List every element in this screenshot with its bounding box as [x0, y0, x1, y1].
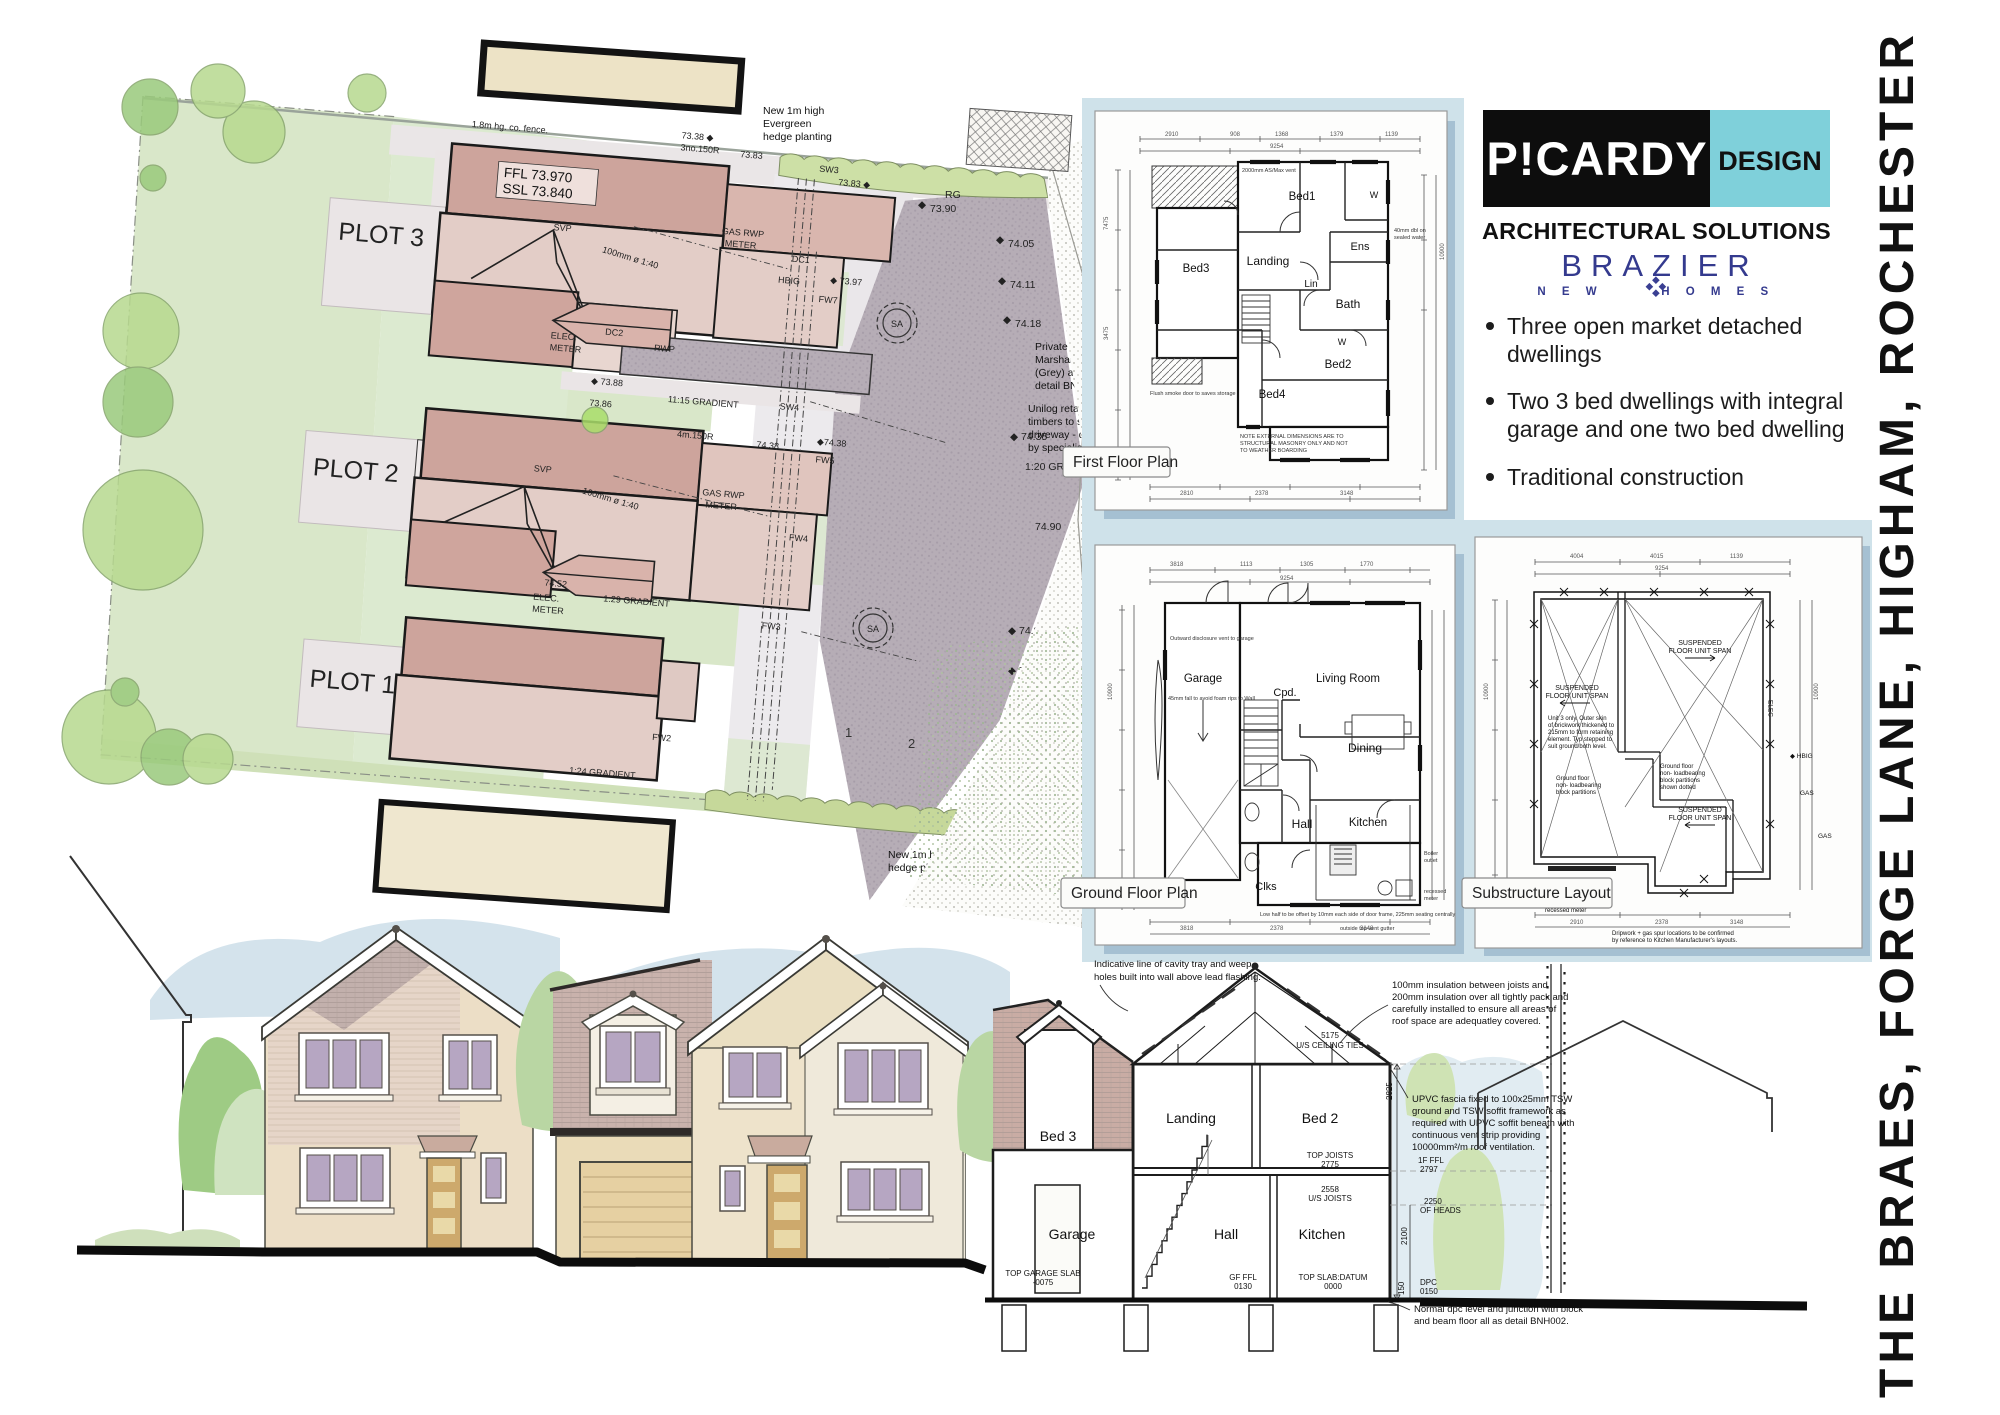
svg-text:2775: 2775 — [1321, 1160, 1339, 1169]
svg-text:FW5: FW5 — [815, 454, 835, 466]
svg-text:1379: 1379 — [1330, 132, 1344, 138]
svg-text:9254: 9254 — [1280, 576, 1294, 582]
svg-text:W: W — [1370, 190, 1379, 200]
svg-text:100mm insulation between joist: 100mm insulation between joists and — [1392, 980, 1548, 991]
svg-text:carefully installed to ensure: carefully installed to ensure all areas … — [1392, 1004, 1557, 1015]
svg-text:non- loadbearing: non- loadbearing — [1556, 783, 1601, 789]
svg-text:10900: 10900 — [1484, 683, 1490, 700]
svg-text:Evergreen: Evergreen — [763, 118, 812, 130]
svg-text:Garage: Garage — [1184, 673, 1222, 685]
svg-text:SA: SA — [867, 624, 879, 634]
svg-text:Ground floor: Ground floor — [1556, 776, 1589, 782]
svg-text:◆: ◆ — [998, 275, 1007, 287]
svg-text:74.38: 74.38 — [756, 439, 779, 451]
svg-text:W: W — [1338, 337, 1347, 347]
svg-text:FW4: FW4 — [789, 532, 809, 544]
svg-text:2250: 2250 — [1424, 1197, 1442, 1206]
svg-text:Unit 3 only. Outer skin: Unit 3 only. Outer skin — [1548, 716, 1607, 722]
svg-text:4004: 4004 — [1570, 554, 1584, 560]
svg-text:Cpd.: Cpd. — [1273, 687, 1296, 699]
svg-text:GF FFL: GF FFL — [1229, 1273, 1257, 1282]
svg-text:Bath: Bath — [1336, 297, 1361, 311]
svg-text:2797: 2797 — [1420, 1165, 1438, 1174]
svg-text:200mm insulation over all tigh: 200mm insulation over all tightly pack a… — [1392, 992, 1568, 1003]
svg-text:Ground Floor Plan: Ground Floor Plan — [1071, 885, 1198, 902]
svg-text:Bed 3: Bed 3 — [1040, 1128, 1077, 1144]
svg-text:◆: ◆ — [996, 234, 1005, 246]
svg-text:TO WEATHER BOARDING: TO WEATHER BOARDING — [1240, 448, 1307, 454]
svg-text:dwellings: dwellings — [1507, 341, 1602, 367]
svg-text:74.52: 74.52 — [544, 578, 567, 590]
svg-text:10900: 10900 — [1440, 243, 1446, 260]
svg-text:Living Room: Living Room — [1316, 673, 1380, 685]
svg-text:◆: ◆ — [1003, 314, 1012, 326]
svg-text:STRUCTURAL MASONRY ONLY AND NO: STRUCTURAL MASONRY ONLY AND NOT — [1240, 441, 1349, 447]
svg-text:HBIG: HBIG — [778, 275, 801, 287]
svg-text:suit ground/both level.: suit ground/both level. — [1548, 744, 1607, 750]
svg-text:Dining: Dining — [1348, 741, 1382, 755]
svg-text:10900: 10900 — [1814, 683, 1820, 700]
svg-text:9254: 9254 — [1270, 144, 1284, 150]
svg-text:Two 3 bed dwellings with integ: Two 3 bed dwellings with integral — [1507, 388, 1843, 414]
svg-text:908: 908 — [1230, 132, 1241, 138]
svg-text:DPC: DPC — [1420, 1278, 1437, 1287]
svg-text:element. Typ stepped to: element. Typ stepped to — [1548, 737, 1613, 743]
svg-text:Garage: Garage — [1049, 1226, 1096, 1242]
svg-text:74.11: 74.11 — [1010, 279, 1036, 291]
svg-text:DC1: DC1 — [791, 254, 810, 265]
svg-text:Bed 2: Bed 2 — [1302, 1110, 1339, 1126]
svg-text:ARCHITECTURAL SOLUTIONS: ARCHITECTURAL SOLUTIONS — [1482, 218, 1831, 244]
svg-text:2910: 2910 — [1165, 132, 1179, 138]
svg-text:-0075: -0075 — [1033, 1278, 1054, 1287]
svg-text:RG: RG — [945, 189, 961, 201]
svg-text:GAS: GAS — [1800, 790, 1814, 797]
svg-text:Hall: Hall — [1214, 1226, 1238, 1242]
svg-text:1113: 1113 — [1240, 562, 1253, 568]
svg-text:garage and one two bed dwellin: garage and one two bed dwelling — [1507, 416, 1845, 442]
svg-text:SUSPENDED: SUSPENDED — [1555, 685, 1599, 692]
svg-text:4015: 4015 — [1650, 554, 1664, 560]
svg-text:recessed meter: recessed meter — [1545, 908, 1586, 914]
svg-text:10900: 10900 — [1108, 683, 1114, 700]
svg-text:2810: 2810 — [1180, 491, 1194, 497]
svg-text:215mm to form retaining: 215mm to form retaining — [1548, 730, 1613, 736]
svg-text:SUSPENDED: SUSPENDED — [1678, 807, 1722, 814]
svg-text:U/S JOISTS: U/S JOISTS — [1308, 1194, 1352, 1203]
svg-text:73.83: 73.83 — [740, 149, 763, 161]
svg-text:FW2: FW2 — [652, 732, 672, 744]
svg-text:0000: 0000 — [1324, 1282, 1342, 1291]
svg-text:1305: 1305 — [1300, 562, 1314, 568]
svg-text:2378: 2378 — [1255, 491, 1269, 497]
svg-text:3148: 3148 — [1730, 920, 1744, 926]
svg-text:◆ HBIG: ◆ HBIG — [1790, 753, 1813, 760]
svg-text:3818: 3818 — [1180, 926, 1194, 932]
svg-text:Landing: Landing — [1247, 254, 1290, 268]
svg-text:NOTE EXTERNAL DIMENSIONS ARE T: NOTE EXTERNAL DIMENSIONS ARE TO — [1240, 434, 1344, 440]
svg-text:3148: 3148 — [1340, 491, 1354, 497]
svg-text:DESIGN: DESIGN — [1718, 146, 1822, 176]
svg-text:FLOOR UNIT SPAN: FLOOR UNIT SPAN — [1669, 815, 1732, 822]
svg-text:block partitions: block partitions — [1660, 778, 1700, 784]
svg-text:150: 150 — [1397, 1281, 1406, 1295]
svg-text:New 1m high: New 1m high — [763, 105, 824, 117]
svg-text:hedge planting: hedge planting — [763, 131, 832, 143]
svg-text:Ground floor: Ground floor — [1660, 764, 1693, 770]
svg-text:Bed1: Bed1 — [1289, 191, 1316, 203]
svg-text:2: 2 — [908, 736, 915, 751]
svg-text:2378: 2378 — [1655, 920, 1669, 926]
svg-text:Boiler: Boiler — [1424, 851, 1438, 857]
svg-text:Ens: Ens — [1351, 241, 1370, 253]
svg-text:FLOOR UNIT SPAN: FLOOR UNIT SPAN — [1669, 648, 1732, 655]
svg-text:meter: meter — [1424, 896, 1438, 902]
svg-text:required with UPVC soffit bene: required with UPVC soffit beneath with — [1412, 1118, 1574, 1129]
svg-text:Bed4: Bed4 — [1259, 389, 1286, 401]
svg-text:1F FFL: 1F FFL — [1418, 1156, 1444, 1165]
svg-text:Hall: Hall — [1292, 817, 1313, 831]
svg-text:Indicative line of cavity tray: Indicative line of cavity tray and weep — [1094, 959, 1251, 970]
svg-text:shown dotted: shown dotted — [1660, 785, 1696, 791]
svg-text:P!CARDY: P!CARDY — [1486, 132, 1707, 185]
svg-text:1770: 1770 — [1360, 562, 1374, 568]
svg-text:ELEC.: ELEC. — [550, 330, 577, 342]
svg-text:2100: 2100 — [1400, 1227, 1409, 1245]
svg-text:block partitions: block partitions — [1556, 790, 1596, 796]
svg-text:SVP: SVP — [533, 463, 552, 474]
svg-text:ELEC: ELEC — [1767, 700, 1774, 717]
svg-text:Kitchen: Kitchen — [1299, 1226, 1346, 1242]
svg-text:SUSPENDED: SUSPENDED — [1678, 640, 1722, 647]
svg-text:sealed water: sealed water — [1394, 235, 1425, 241]
svg-text:Lin: Lin — [1304, 279, 1317, 290]
svg-text:Landing: Landing — [1166, 1110, 1216, 1126]
svg-text:ground and TSW soffit framewor: ground and TSW soffit framework as — [1412, 1106, 1566, 1117]
svg-text:2910: 2910 — [1570, 920, 1584, 926]
svg-text:Kitchen: Kitchen — [1349, 817, 1387, 829]
svg-text:TOP JOISTS: TOP JOISTS — [1307, 1151, 1353, 1160]
svg-text:0130: 0130 — [1234, 1282, 1252, 1291]
svg-text:74.05: 74.05 — [1008, 238, 1034, 250]
svg-text:1139: 1139 — [1385, 132, 1399, 138]
svg-text:and beam floor all as detail B: and beam floor all as detail BNH002. — [1414, 1316, 1569, 1327]
svg-text:Three open market detached: Three open market detached — [1507, 313, 1802, 339]
svg-text:SA: SA — [891, 319, 903, 329]
svg-text:FW7: FW7 — [818, 294, 838, 306]
svg-text:Outward disclosure vent to gar: Outward disclosure vent to garage — [1170, 636, 1254, 642]
svg-text:OF HEADS: OF HEADS — [1420, 1206, 1461, 1215]
svg-text:Substructure Layout: Substructure Layout — [1472, 885, 1611, 902]
svg-text:3818: 3818 — [1170, 562, 1184, 568]
svg-text:9254: 9254 — [1655, 566, 1669, 572]
svg-text:0150: 0150 — [1420, 1287, 1438, 1296]
svg-text:THE BRAES, FORGE LANE, HIGHAM,: THE BRAES, FORGE LANE, HIGHAM, ROCHESTER — [1871, 30, 1924, 1398]
svg-text:DC2: DC2 — [605, 327, 624, 338]
svg-text:holes built into wall above le: holes built into wall above lead flashin… — [1094, 972, 1261, 983]
svg-text:1139: 1139 — [1730, 554, 1744, 560]
svg-text:roof space are adequatley cove: roof space are adequatley covered. — [1392, 1016, 1541, 1027]
svg-text:7475: 7475 — [1104, 216, 1110, 230]
svg-text:Dripwork + gas spur locations: Dripwork + gas spur locations to be conf… — [1612, 931, 1734, 937]
svg-text:Flush smoke door to saves stor: Flush smoke door to saves storage — [1150, 391, 1236, 397]
svg-text:74.18: 74.18 — [1015, 318, 1041, 330]
svg-text:continuous vent strip providin: continuous vent strip providing — [1412, 1130, 1540, 1141]
svg-text:40mm dbl on: 40mm dbl on — [1394, 228, 1426, 234]
svg-text:ELEC.: ELEC. — [533, 592, 560, 604]
svg-text:of brickwork thickened to: of brickwork thickened to — [1548, 723, 1615, 729]
svg-text:Clks: Clks — [1255, 881, 1277, 893]
svg-text:Bed2: Bed2 — [1325, 359, 1352, 371]
svg-text:3475: 3475 — [1104, 326, 1110, 340]
svg-text:SW4: SW4 — [779, 401, 799, 413]
svg-text:2000mm AS/Max vent: 2000mm AS/Max vent — [1242, 168, 1296, 174]
svg-text:45mm fall to avoid foam rips t: 45mm fall to avoid foam rips to Wall — [1168, 696, 1255, 702]
svg-text:TOP GARAGE SLAB: TOP GARAGE SLAB — [1005, 1269, 1080, 1278]
svg-text:outside top vent gutter: outside top vent gutter — [1340, 926, 1395, 932]
svg-text:UPVC fascia fixed to 100x25mm: UPVC fascia fixed to 100x25mm TSW — [1412, 1094, 1572, 1105]
svg-text:non- loadbearing: non- loadbearing — [1660, 771, 1705, 777]
svg-text:◆: ◆ — [918, 199, 927, 211]
svg-text:First Floor Plan: First Floor Plan — [1073, 454, 1178, 471]
svg-text:FW3: FW3 — [761, 620, 781, 632]
svg-text:Bed3: Bed3 — [1183, 263, 1210, 275]
svg-text:GAS: GAS — [1818, 833, 1832, 840]
svg-text:U/S CEILING TIES: U/S CEILING TIES — [1296, 1041, 1363, 1050]
svg-text:2558: 2558 — [1321, 1185, 1339, 1194]
svg-text:Normal dpc level and junction: Normal dpc level and junction with block — [1414, 1304, 1583, 1315]
svg-text:outlet: outlet — [1424, 858, 1438, 864]
svg-text:SW3: SW3 — [819, 164, 839, 176]
svg-text:2378: 2378 — [1270, 926, 1284, 932]
svg-text:1368: 1368 — [1275, 132, 1289, 138]
svg-text:1: 1 — [845, 725, 852, 740]
svg-text:BRAZIER: BRAZIER — [1561, 248, 1758, 283]
svg-text:SVP: SVP — [553, 222, 572, 233]
svg-text:Low half to be offset by 10mm: Low half to be offset by 10mm each side … — [1260, 912, 1456, 918]
svg-text:TOP SLAB:DATUM: TOP SLAB:DATUM — [1299, 1273, 1368, 1282]
svg-text:RWP: RWP — [654, 343, 676, 355]
svg-text:5175: 5175 — [1321, 1031, 1339, 1040]
svg-text:2825: 2825 — [1385, 1082, 1394, 1100]
svg-text:Traditional construction: Traditional construction — [1507, 464, 1744, 490]
svg-text:FLOOR UNIT SPAN: FLOOR UNIT SPAN — [1546, 693, 1609, 700]
svg-text:by reference to Kitchen Manufa: by reference to Kitchen Manufacturer's l… — [1612, 938, 1738, 944]
svg-text:recessed: recessed — [1424, 889, 1446, 895]
svg-text:74.90: 74.90 — [1035, 521, 1061, 533]
svg-text:10000mm²/m roof ventilation.: 10000mm²/m roof ventilation. — [1412, 1142, 1535, 1153]
svg-text:73.90: 73.90 — [930, 203, 956, 215]
